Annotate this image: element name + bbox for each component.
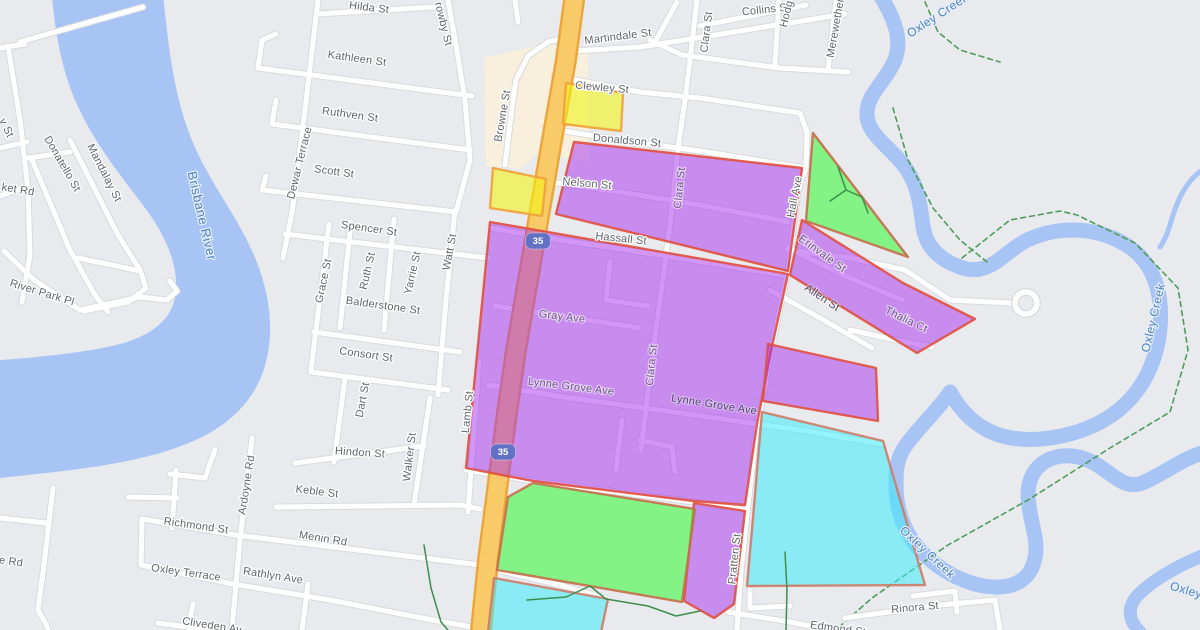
road-stub xyxy=(128,497,177,498)
road-stub xyxy=(515,0,518,22)
route-shield-label: 35 xyxy=(498,447,509,458)
map-screenshot[interactable]: y Stket RdDonatello StMandalay StRiver P… xyxy=(0,0,1200,630)
route-shield-label: 35 xyxy=(533,236,544,247)
zone-central-purple xyxy=(466,222,788,505)
map-canvas: y Stket RdDonatello StMandalay StRiver P… xyxy=(0,0,1200,630)
road-connector xyxy=(141,519,142,565)
